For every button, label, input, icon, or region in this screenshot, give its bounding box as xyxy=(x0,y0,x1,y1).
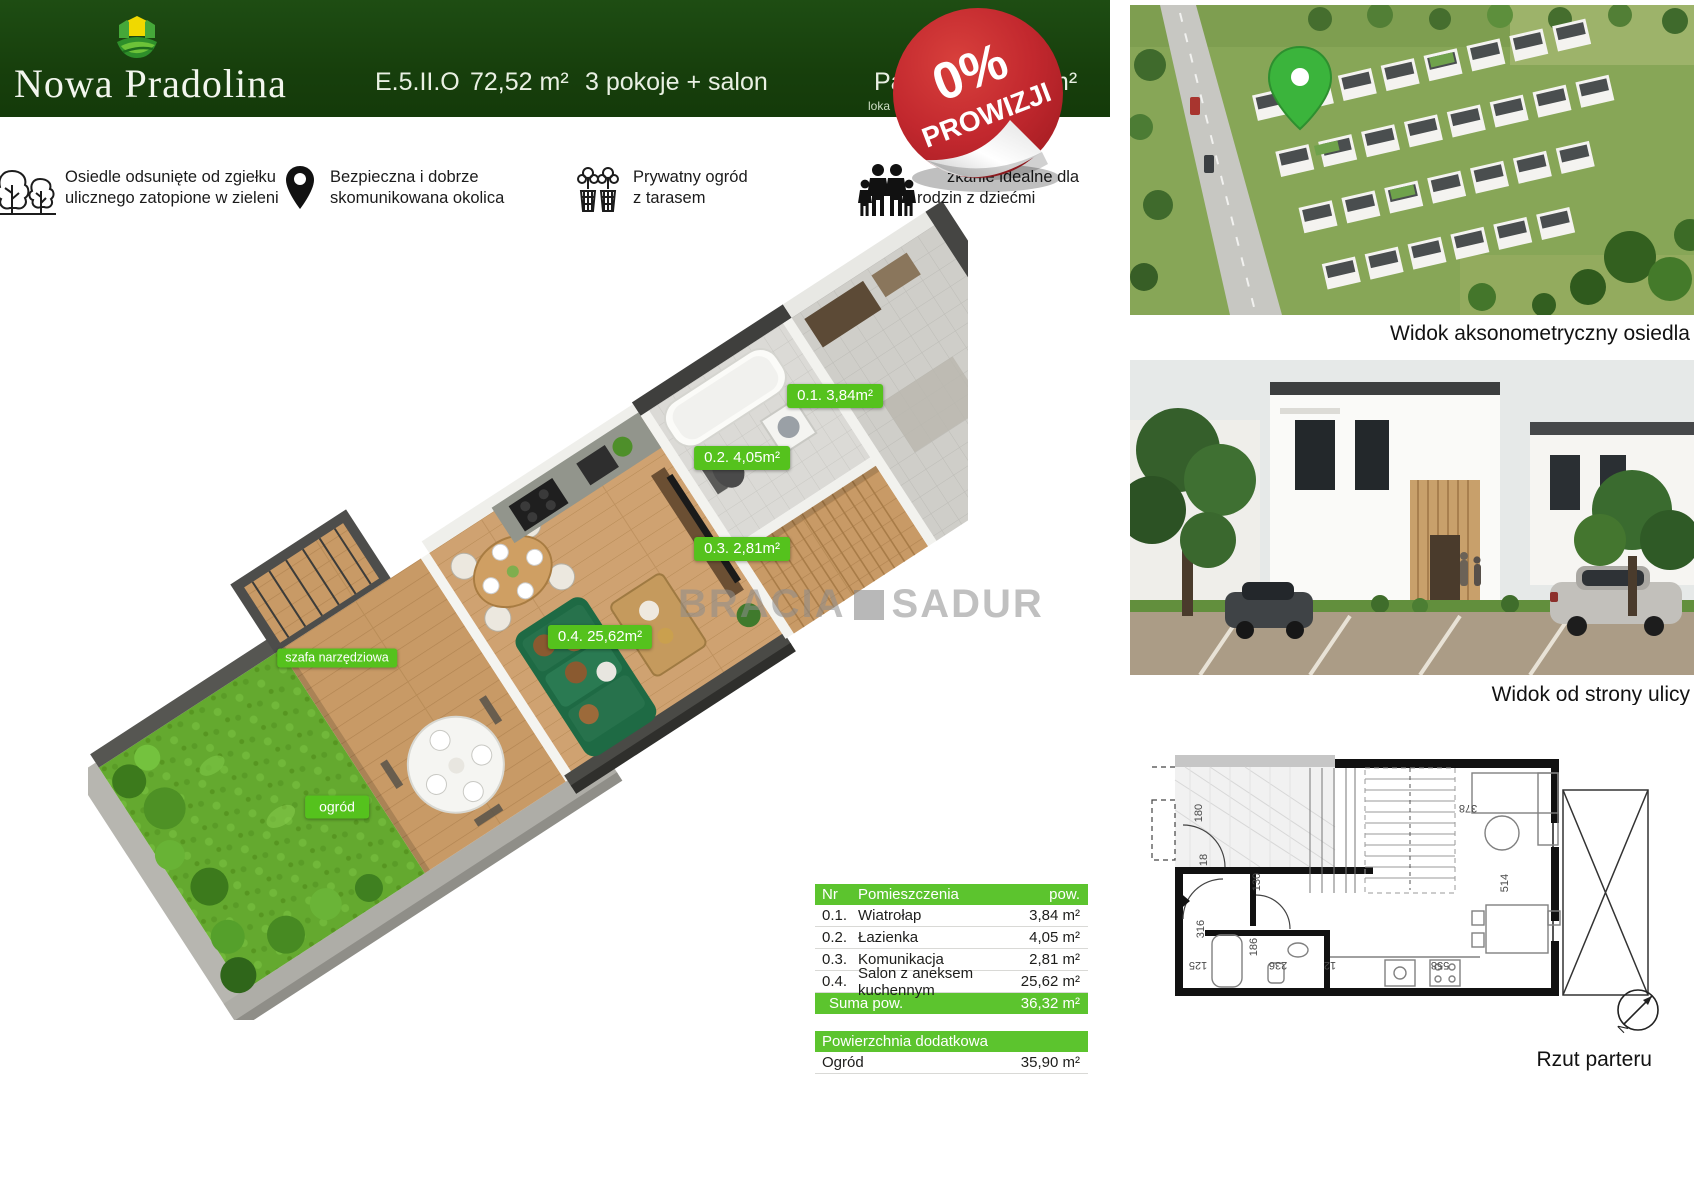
col-area: pow. xyxy=(1049,886,1088,903)
listing-flyer: Nowa Pradolina E.5.II.O 72,52 m² 3 pokoj… xyxy=(0,0,1694,1200)
watermark-right: SADUR xyxy=(892,582,1044,627)
watermark-logo-block xyxy=(854,590,884,620)
row-area: 25,62 m² xyxy=(1021,973,1088,990)
extra-header-label: Powierzchnia dodatkowa xyxy=(815,1033,1088,1050)
svg-text:186: 186 xyxy=(1248,938,1260,956)
svg-text:18: 18 xyxy=(1198,854,1210,866)
row-nr: 0.1. xyxy=(815,907,858,924)
row-nr: 0.3. xyxy=(815,951,858,968)
room-tag-0-4: 0.4. 25,62m² xyxy=(548,625,652,649)
svg-text:514: 514 xyxy=(1499,874,1511,892)
extra-table: Powierzchnia dodatkowa Ogród 35,90 m² xyxy=(815,1031,1088,1074)
svg-text:316: 316 xyxy=(1195,920,1207,938)
table-row: Ogród 35,90 m² xyxy=(815,1052,1088,1074)
caption-street: Widok od strony ulicy xyxy=(1130,683,1690,707)
floorplan-2d-drawing: 180 18 130 316 186 125 236 12 378 514 55… xyxy=(1150,705,1694,1040)
svg-text:12: 12 xyxy=(1324,959,1336,971)
zero-commission-badge: 0% PROWIZJI xyxy=(878,2,1092,202)
table-row: 0.1. Wiatrołap 3,84 m² xyxy=(815,905,1088,927)
feature-3-line1: Prywatny ogród xyxy=(633,167,748,188)
project-title: Nowa Pradolina xyxy=(14,60,287,107)
unit-code: E.5.II.O xyxy=(375,68,460,97)
room-tag-0-1: 0.1. 3,84m² xyxy=(787,384,883,408)
trees-icon xyxy=(0,165,58,217)
feature-2-line1: Bezpieczna i dobrze xyxy=(330,167,504,188)
svg-text:378: 378 xyxy=(1459,802,1477,814)
unit-rooms: 3 pokoje + salon xyxy=(585,68,768,97)
extra-table-header: Powierzchnia dodatkowa xyxy=(815,1031,1088,1052)
svg-text:130: 130 xyxy=(1251,873,1263,891)
caption-aerial: Widok aksonometryczny osiedla xyxy=(1130,322,1690,346)
col-nr: Nr xyxy=(815,886,858,903)
rooms-table: Nr Pomieszczenia pow. 0.1. Wiatrołap 3,8… xyxy=(815,884,1088,1014)
garden-tag: ogród xyxy=(305,796,369,819)
sum-label: Suma pow. xyxy=(829,995,1021,1012)
row-area: 4,05 m² xyxy=(1029,929,1088,946)
table-row: 0.2. Łazienka 4,05 m² xyxy=(815,927,1088,949)
watermark-left: BRACIA xyxy=(678,582,846,627)
rooms-table-footer: Suma pow. 36,32 m² xyxy=(815,993,1088,1014)
feature-1-line1: Osiedle odsunięte od zgiełku xyxy=(65,167,279,188)
watermark: BRACIA SADUR xyxy=(678,582,1044,627)
row-nr: 0.2. xyxy=(815,929,858,946)
row-nr: 0.4. xyxy=(815,973,858,990)
svg-text:180: 180 xyxy=(1193,804,1205,822)
row-name: Łazienka xyxy=(858,929,1029,946)
nowa-pradolina-logo-icon xyxy=(111,12,163,64)
aerial-render xyxy=(1130,5,1694,315)
table-row: 0.4. Salon z aneksem kuchennym 25,62 m² xyxy=(815,971,1088,993)
street-render xyxy=(1130,360,1694,675)
sum-area: 36,32 m² xyxy=(1021,995,1088,1012)
room-tag-0-3: 0.3. 2,81m² xyxy=(694,537,790,561)
svg-text:236: 236 xyxy=(1269,959,1287,971)
svg-text:125: 125 xyxy=(1189,959,1207,971)
row-name: Ogród xyxy=(815,1054,1021,1071)
room-tag-0-2: 0.2. 4,05m² xyxy=(694,446,790,470)
row-area: 3,84 m² xyxy=(1029,907,1088,924)
col-name: Pomieszczenia xyxy=(858,886,1049,903)
caption-plan: Rzut parteru xyxy=(1130,1048,1652,1072)
row-area: 35,90 m² xyxy=(1021,1054,1088,1071)
row-name: Wiatrołap xyxy=(858,907,1029,924)
svg-text:558: 558 xyxy=(1431,959,1449,971)
row-name: Salon z aneksem kuchennym xyxy=(858,965,1021,999)
shed-tag: szafa narzędziowa xyxy=(277,649,397,668)
unit-area: 72,52 m² xyxy=(470,68,569,97)
rooms-table-header: Nr Pomieszczenia pow. xyxy=(815,884,1088,905)
row-area: 2,81 m² xyxy=(1029,951,1088,968)
